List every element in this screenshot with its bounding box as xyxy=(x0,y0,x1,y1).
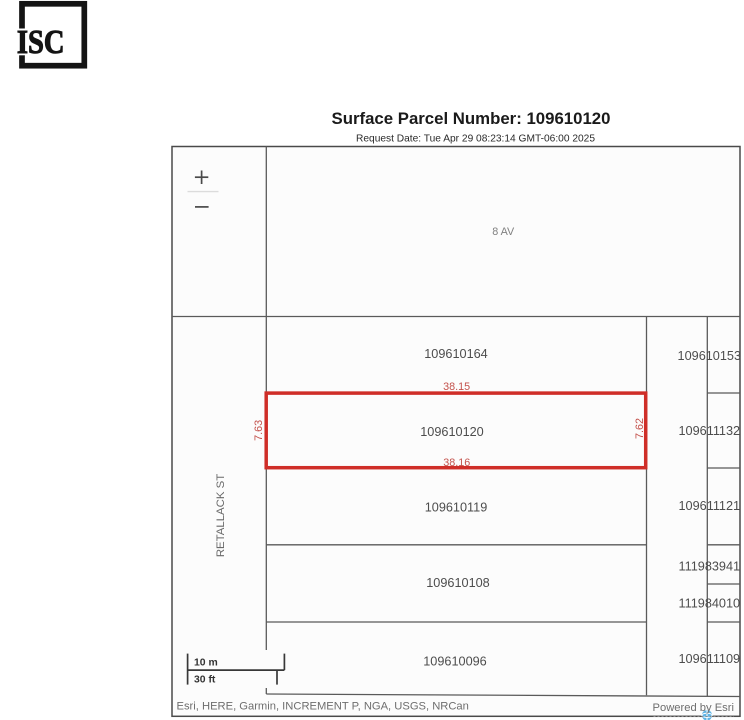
svg-text:109611132: 109611132 xyxy=(678,424,740,438)
svg-text:Powered by Esri: Powered by Esri xyxy=(653,702,734,714)
svg-text:109610120: 109610120 xyxy=(420,425,484,439)
svg-text:8 AV: 8 AV xyxy=(492,226,515,238)
svg-text:ISC: ISC xyxy=(17,23,65,61)
svg-text:RETALLACK ST: RETALLACK ST xyxy=(215,474,227,557)
svg-text:7.63: 7.63 xyxy=(253,420,265,441)
svg-text:109611121: 109611121 xyxy=(678,499,740,513)
svg-text:109611109: 109611109 xyxy=(678,652,740,666)
svg-text:109610164: 109610164 xyxy=(424,347,488,361)
svg-text:Surface Parcel Number: 1096101: Surface Parcel Number: 109610120 xyxy=(332,109,611,128)
svg-text:30 ft: 30 ft xyxy=(194,675,216,686)
svg-text:109610108: 109610108 xyxy=(426,576,490,590)
svg-text:38.16: 38.16 xyxy=(443,457,470,469)
svg-text:109610096: 109610096 xyxy=(423,654,487,668)
svg-text:10 m: 10 m xyxy=(194,657,218,668)
svg-text:109610119: 109610119 xyxy=(425,501,488,515)
svg-text:Esri, HERE, Garmin, INCREMENT: Esri, HERE, Garmin, INCREMENT P, NGA, US… xyxy=(177,700,469,712)
svg-text:111983941: 111983941 xyxy=(678,560,740,574)
svg-text:Request Date: Tue Apr 29 08:23: Request Date: Tue Apr 29 08:23:14 GMT-06… xyxy=(356,133,595,144)
svg-text:7.62: 7.62 xyxy=(634,418,646,439)
svg-text:38.15: 38.15 xyxy=(443,381,470,393)
svg-text:109610153: 109610153 xyxy=(678,349,742,363)
svg-text:111984010: 111984010 xyxy=(678,597,740,611)
